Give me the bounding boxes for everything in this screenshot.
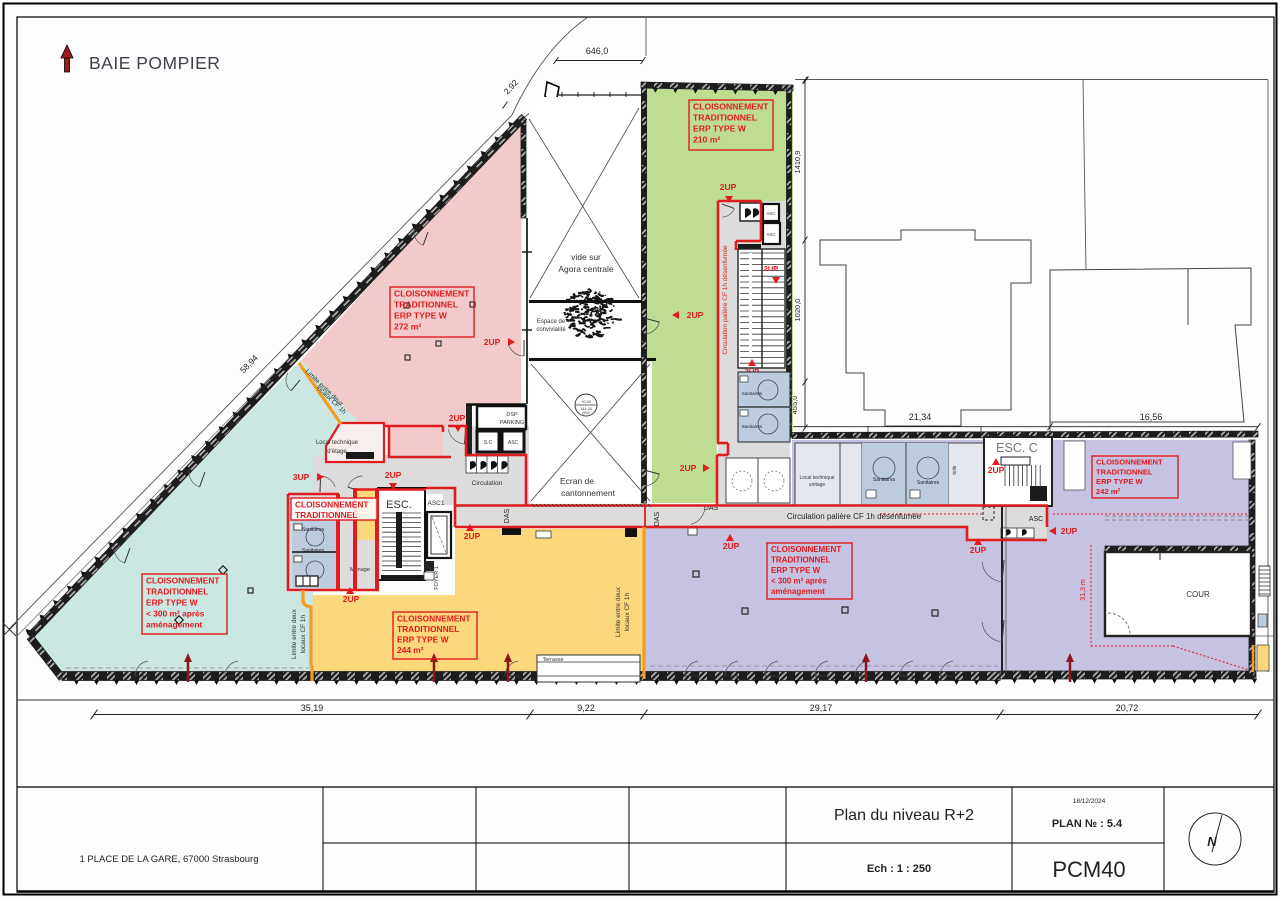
svg-text:244 m²: 244 m² [397, 645, 424, 655]
svg-text:< 300 m² après: < 300 m² après [771, 577, 827, 586]
svg-text:2UP: 2UP [764, 264, 779, 273]
svg-text:ERP TYPE W: ERP TYPE W [397, 634, 449, 644]
svg-text:ERP TYPE W: ERP TYPE W [394, 311, 448, 321]
svg-text:S.C: S.C [484, 440, 493, 446]
svg-text:1410,9: 1410,9 [793, 151, 802, 174]
svg-text:TRADITIONNEL: TRADITIONNEL [394, 300, 458, 310]
svg-text:Plan du niveau R+2: Plan du niveau R+2 [834, 807, 974, 824]
svg-text:Circulation: Circulation [472, 480, 503, 487]
svg-text:Circulation palière CF 1h dése: Circulation palière CF 1h désenfumée [722, 245, 729, 354]
svg-text:ERP TYPE W: ERP TYPE W [693, 124, 747, 134]
svg-text:TRADITIONNEL: TRADITIONNEL [146, 586, 208, 596]
svg-text:2UP: 2UP [687, 310, 704, 320]
svg-text:ESC. C: ESC. C [996, 441, 1038, 455]
svg-text:31,3 m: 31,3 m [1080, 579, 1087, 601]
svg-text:Ech : 1 : 250: Ech : 1 : 250 [867, 863, 931, 875]
svg-text:21,34: 21,34 [909, 412, 932, 422]
svg-text:toile: toile [952, 465, 958, 474]
svg-text:Sanitaires: Sanitaires [742, 424, 763, 429]
svg-text:ESC.: ESC. [386, 499, 412, 511]
svg-text:ASC: ASC [1029, 516, 1043, 523]
svg-text:1020,0: 1020,0 [793, 299, 802, 322]
svg-text:TRADITIONNEL: TRADITIONNEL [397, 624, 459, 634]
svg-text:aménagement: aménagement [146, 619, 203, 629]
svg-text:(9%): (9%) [582, 411, 589, 415]
svg-text:242 m²: 242 m² [1096, 487, 1121, 496]
svg-text:Sanitaires: Sanitaires [873, 477, 896, 483]
svg-text:CLOISONNEMENT: CLOISONNEMENT [1096, 458, 1163, 467]
svg-text:Sanitaires: Sanitaires [917, 480, 940, 486]
svg-text:CLOISONNEMENT: CLOISONNEMENT [771, 545, 841, 554]
svg-text:FOYER 1: FOYER 1 [434, 566, 440, 590]
svg-text:aménagement: aménagement [771, 587, 825, 596]
svg-text:ASC: ASC [508, 440, 519, 446]
svg-text:2UP: 2UP [464, 531, 481, 541]
svg-text:2UP: 2UP [680, 463, 697, 473]
svg-text:Espace de: Espace de [537, 319, 566, 325]
svg-text:N: N [1207, 834, 1217, 849]
svg-text:PCM40: PCM40 [1052, 857, 1125, 882]
svg-text:ERP TYPE W: ERP TYPE W [1096, 477, 1144, 486]
svg-text:2UP: 2UP [723, 541, 740, 551]
svg-text:Local technique: Local technique [799, 475, 834, 481]
svg-text:Limite entre deux: Limite entre deux [615, 586, 622, 637]
svg-text:DSP: DSP [506, 412, 518, 418]
svg-text:Circulation palière CF 1h dése: Circulation palière CF 1h désenfumée [787, 512, 922, 521]
svg-text:< 300 m² après: < 300 m² après [146, 608, 205, 618]
svg-text:2UP: 2UP [385, 470, 402, 480]
svg-text:Ecran de: Ecran de [560, 476, 594, 486]
svg-text:2UP: 2UP [988, 465, 1005, 475]
svg-text:ASC: ASC [766, 211, 776, 216]
svg-text:35,19: 35,19 [301, 703, 324, 713]
svg-text:Sanitaires: Sanitaires [742, 391, 763, 396]
svg-text:Sanitaires: Sanitaires [302, 527, 325, 533]
svg-text:1 PLACE DE LA GARE, 67000 Stra: 1 PLACE DE LA GARE, 67000 Strasbourg [79, 854, 258, 865]
svg-text:locaux CF 1h: locaux CF 1h [300, 614, 307, 653]
svg-text:cantonnement: cantonnement [561, 488, 616, 498]
svg-text:ASC1: ASC1 [428, 500, 445, 507]
svg-text:TRADITIONNEL: TRADITIONNEL [693, 113, 757, 123]
svg-text:Local technique: Local technique [316, 440, 359, 446]
svg-text:unitage: unitage [809, 482, 826, 488]
svg-text:210 m²: 210 m² [693, 135, 720, 145]
svg-text:CLOISONNEMENT: CLOISONNEMENT [693, 102, 769, 112]
svg-text:ERP TYPE W: ERP TYPE W [146, 597, 198, 607]
svg-text:2UP: 2UP [449, 413, 466, 423]
svg-text:18/12/2024: 18/12/2024 [1073, 798, 1106, 805]
svg-text:Sanitaires: Sanitaires [302, 548, 325, 554]
svg-text:CLOISONNEMENT: CLOISONNEMENT [146, 575, 220, 585]
svg-text:646,0: 646,0 [586, 46, 609, 56]
svg-text:+0,00: +0,00 [581, 399, 592, 404]
svg-text:ERP TYPE W: ERP TYPE W [771, 566, 821, 575]
svg-text:TRADITIONNEL: TRADITIONNEL [771, 556, 831, 565]
svg-text:CLOISONNEMENT: CLOISONNEMENT [295, 499, 369, 509]
svg-text:DAS: DAS [504, 508, 511, 523]
svg-text:2UP: 2UP [484, 337, 501, 347]
svg-text:Limite entre deux: Limite entre deux [291, 608, 298, 659]
svg-text:2UP: 2UP [970, 545, 987, 555]
svg-text:CLOISONNEMENT: CLOISONNEMENT [397, 613, 471, 623]
svg-text:COUR: COUR [1186, 590, 1210, 599]
svg-text:PLAN № : 5.4: PLAN № : 5.4 [1052, 818, 1123, 830]
svg-text:Agora centrale: Agora centrale [558, 264, 614, 274]
svg-text:Terrasse: Terrasse [542, 657, 563, 663]
svg-text:TRADITIONNEL: TRADITIONNEL [295, 510, 357, 520]
svg-text:272 m²: 272 m² [394, 322, 421, 332]
svg-text:locaux CF 1h: locaux CF 1h [624, 592, 631, 631]
svg-text:2UP: 2UP [1061, 526, 1078, 536]
svg-text:DAS: DAS [654, 511, 661, 526]
svg-text:BAIE POMPIER: BAIE POMPIER [89, 53, 220, 73]
svg-text:20,72: 20,72 [1116, 703, 1139, 713]
svg-text:convivialité: convivialité [536, 327, 566, 333]
svg-text:vide sur: vide sur [571, 252, 601, 262]
svg-text:d'étage: d'étage [327, 449, 347, 455]
svg-text:3UP: 3UP [293, 472, 310, 482]
svg-text:29,17: 29,17 [810, 703, 833, 713]
svg-text:PARKING: PARKING [500, 420, 524, 426]
svg-text:2UP: 2UP [720, 182, 737, 192]
svg-text:ASC: ASC [766, 232, 776, 237]
svg-text:9,22: 9,22 [577, 703, 595, 713]
svg-text:2UP: 2UP [343, 594, 360, 604]
svg-text:16,56: 16,56 [1140, 412, 1163, 422]
svg-text:CLOISONNEMENT: CLOISONNEMENT [394, 289, 470, 299]
svg-text:TRADITIONNEL: TRADITIONNEL [1096, 467, 1153, 476]
